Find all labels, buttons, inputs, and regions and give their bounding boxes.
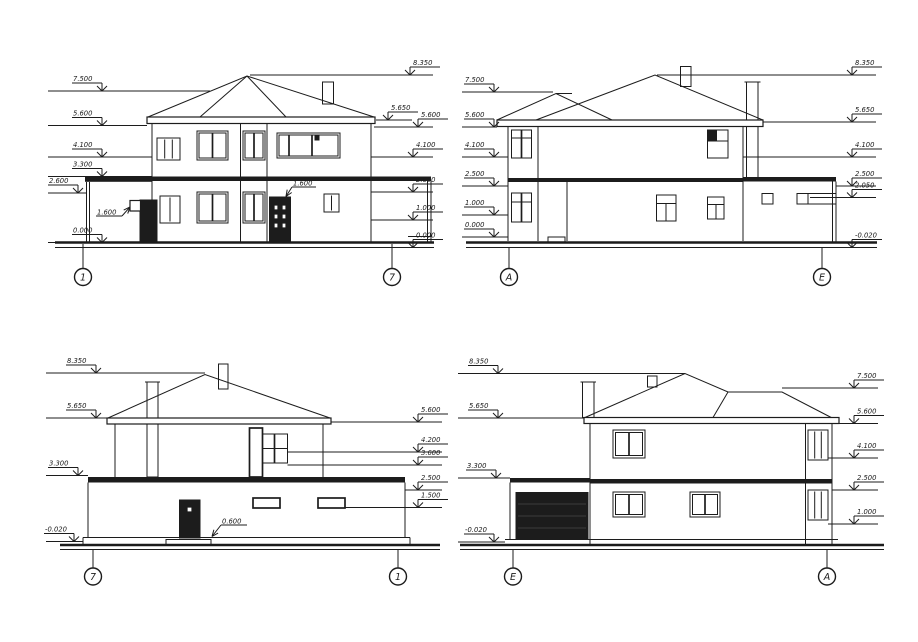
interfloor-band (508, 178, 743, 182)
chimney (219, 364, 229, 389)
first-floor-windows (613, 490, 828, 520)
elevation-value: 0.000 (465, 221, 484, 229)
eaves-band (584, 418, 839, 424)
first-floor (83, 483, 410, 546)
roof (581, 374, 839, 422)
elevation-mark: 2.050 (810, 182, 882, 198)
axis-marker-1: 1 (390, 550, 407, 586)
elevation-value: 0.000 (416, 232, 435, 240)
elevation-value: 1.000 (416, 204, 435, 212)
axis-marker-А: А (501, 248, 518, 286)
second-floor-windows (613, 430, 828, 460)
elevation-value: 8.350 (67, 357, 86, 365)
elevation-mark: 1.500 (345, 492, 448, 508)
axis-marker-Е: Е (814, 248, 831, 286)
elevation-value: 2.600 (49, 177, 68, 185)
axis-marker-7: 7 (85, 550, 102, 586)
elevation-mark: 7.500 (48, 75, 210, 91)
elevation-value: 5.600 (73, 110, 92, 118)
drawing-sheet: 7.5005.6004.1003.3002.6000.0008.3505.650… (0, 0, 918, 642)
elevation-value: 4.100 (855, 141, 874, 149)
dimensions-elevation-E-A: 8.3505.6503.300-0.0207.5005.6004.1002.50… (458, 358, 884, 586)
axis-label: А (823, 572, 831, 583)
carport-roof (85, 177, 152, 182)
elevation-value: 4.100 (465, 141, 484, 149)
elevation-mark: 8.350 (250, 59, 440, 75)
elevation-mark: 1.000 (462, 199, 508, 215)
elevation-value: 5.650 (855, 106, 874, 114)
elevation-mark: 2.500 (832, 474, 884, 490)
elevation-mark: 5.650 (458, 402, 584, 418)
tall-chimney (145, 382, 160, 477)
elevation-value: 4.100 (416, 141, 435, 149)
garage-door (516, 493, 588, 539)
window (157, 138, 180, 160)
elevation-mark: 5.600 (48, 110, 147, 126)
second-floor-windows (157, 131, 340, 160)
extension-roof (743, 177, 836, 182)
elevation-value: 5.600 (421, 406, 440, 414)
elevation-value: 2.050 (855, 182, 874, 190)
axis-marker-1: 1 (75, 244, 92, 286)
window (708, 130, 729, 158)
elevation-mark: 4.100 (462, 141, 508, 157)
entrance-door (180, 500, 201, 538)
window (690, 492, 720, 517)
elevation-value: 2.600 (416, 176, 435, 184)
elevation-value: -0.020 (45, 526, 67, 534)
elevation-mark: 5.600 (839, 408, 884, 424)
elevation-value: 4.200 (421, 436, 440, 444)
elevation-value: -0.020 (465, 526, 487, 534)
window (512, 130, 532, 158)
elevation-mark: 3.600 (288, 449, 449, 465)
elevation-mark: 2.600 (48, 177, 87, 193)
entrance-door (270, 197, 291, 242)
rear-extension (743, 177, 836, 242)
elevation-mark: 5.600 (374, 111, 448, 127)
window (613, 430, 645, 458)
axis-label: 1 (80, 272, 86, 283)
elevation-mark: 0.000 (48, 227, 150, 243)
axis-marker-Е: Е (505, 550, 522, 586)
second-floor-windows (512, 130, 729, 158)
elevation-mark: 5.600 (331, 406, 448, 422)
axis-label: 7 (90, 572, 96, 583)
elevation-mark: 4.100 (371, 141, 443, 157)
elevation-mark: 1.000 (371, 204, 443, 220)
window (243, 192, 265, 223)
elevation-value: 3.600 (421, 449, 440, 457)
axis-marker-А: А (819, 550, 836, 586)
balcony-door (250, 428, 263, 477)
roof (148, 76, 374, 117)
elevation-value: 7.500 (857, 372, 876, 380)
elevation-value: 0.000 (73, 227, 92, 235)
elevation-mark: 7.500 (462, 76, 553, 92)
elevation-mark: 3.300 (458, 462, 510, 478)
elevation-value: 1.500 (421, 492, 440, 500)
carport (85, 177, 157, 242)
tall-chimney (581, 382, 597, 418)
elevation-mark: 0.000 (462, 221, 508, 237)
elevation-value: 7.500 (73, 75, 92, 83)
elevation-mark: 5.650 (763, 106, 882, 122)
elevation-value: 2.500 (857, 474, 876, 482)
side-door (140, 200, 157, 242)
axis-label: Е (510, 572, 516, 583)
elevation-value: 3.300 (73, 161, 92, 169)
elevation-value: 8.350 (855, 59, 874, 67)
first-floor-windows (160, 192, 339, 223)
window (512, 193, 532, 222)
annotation-value: 1.600 (97, 209, 116, 217)
window (277, 133, 340, 158)
window (808, 490, 828, 520)
dimensions-elevation-1-7: 7.5005.6004.1003.3002.6000.0008.3505.650… (48, 59, 448, 286)
window (613, 492, 645, 517)
first-floor-roof-band (88, 477, 405, 483)
annotation: 0.600 (212, 518, 247, 537)
elevation-mark: 8.350 (46, 357, 205, 373)
second-floor-door-window (250, 428, 288, 477)
elevation-mark: 5.650 (46, 402, 107, 418)
elevation-mark: 4.100 (828, 442, 884, 458)
interfloor-band (590, 479, 832, 484)
window (263, 434, 288, 463)
elevation-value: 5.650 (67, 402, 86, 410)
axis-label: Е (819, 272, 825, 283)
garage-roof (510, 478, 590, 483)
elevation-mark: 7.500 (782, 372, 884, 388)
axis-label: 7 (389, 272, 395, 283)
elevation-value: 1.000 (857, 508, 876, 516)
elevation-mark: 4.100 (743, 141, 882, 157)
interfloor-band (152, 177, 371, 182)
window (708, 197, 725, 219)
annotation-value: 1.600 (293, 180, 312, 188)
first-floor-windows (512, 193, 725, 222)
elevation-mark: 2.500 (462, 170, 508, 186)
axis-marker-7: 7 (384, 244, 401, 286)
elevation-mark: 3.300 (48, 161, 152, 177)
eaves-band (497, 120, 763, 127)
window (808, 430, 828, 460)
annotation-value: 0.600 (222, 518, 241, 526)
elevation-mark: 8.350 (458, 358, 685, 374)
elevation-value: 3.300 (467, 462, 486, 470)
elevation-value: 5.650 (469, 402, 488, 410)
garage (510, 478, 590, 540)
axis-label: А (505, 272, 513, 283)
tall-chimney (745, 82, 761, 180)
elevation-value: 4.100 (73, 141, 92, 149)
window (324, 194, 339, 212)
window (657, 195, 677, 221)
elevation-value: 1.000 (465, 199, 484, 207)
view-elevation-1-7 (55, 76, 434, 248)
elevation-value: 5.600 (465, 111, 484, 119)
elevation-value: 5.650 (391, 104, 410, 112)
window (253, 498, 280, 508)
view-elevation-7-1 (60, 364, 440, 550)
axis-label: 1 (395, 572, 401, 583)
chimney (648, 376, 658, 387)
elevation-mark: 0.000 (374, 232, 443, 248)
elevation-mark: 2.500 (405, 474, 448, 490)
elevation-mark: 5.650 (376, 104, 418, 120)
elevation-value: 2.500 (465, 170, 484, 178)
elevation-value: 7.500 (465, 76, 484, 84)
elevation-value: 5.600 (421, 111, 440, 119)
window (197, 131, 228, 160)
elevation-value: 2.500 (855, 170, 874, 178)
walls (590, 424, 832, 546)
elevation-value: 2.500 (421, 474, 440, 482)
elevation-mark: -0.020 (458, 526, 505, 542)
elevation-value: 3.300 (49, 460, 68, 468)
elevation-value: 8.350 (469, 358, 488, 366)
elevation-value: 5.600 (857, 408, 876, 416)
dimensions-elevation-A-E: 7.5005.6004.1002.5001.0000.0008.3505.650… (462, 59, 882, 286)
view-elevation-E-A (460, 374, 884, 550)
walls (115, 424, 323, 477)
elevation-mark: 4.100 (48, 141, 152, 157)
window (762, 194, 773, 205)
annotation: 1.600 (286, 180, 316, 197)
elevation-mark: 3.300 (46, 460, 88, 476)
elevation-mark: 5.600 (462, 111, 499, 127)
elevation-value: -0.020 (855, 232, 877, 240)
eaves-band (107, 418, 331, 424)
elevation-mark: -0.020 (836, 232, 882, 248)
window (797, 194, 808, 205)
elevation-value: 8.350 (413, 59, 432, 67)
elevation-mark: 1.000 (828, 508, 884, 524)
window (243, 131, 265, 160)
window (318, 498, 345, 508)
elevations-drawing: 7.5005.6004.1003.3002.6000.0008.3505.650… (0, 0, 918, 642)
window (160, 196, 180, 223)
eaves-band (147, 117, 375, 124)
elevation-mark: -0.020 (44, 526, 83, 542)
dimensions-elevation-7-1: 8.3505.6503.300-0.0205.6004.2003.6002.50… (44, 357, 448, 585)
annotation: 1.600 (96, 207, 130, 217)
window (197, 192, 228, 223)
chimney (681, 67, 692, 87)
elevation-value: 4.100 (857, 442, 876, 450)
